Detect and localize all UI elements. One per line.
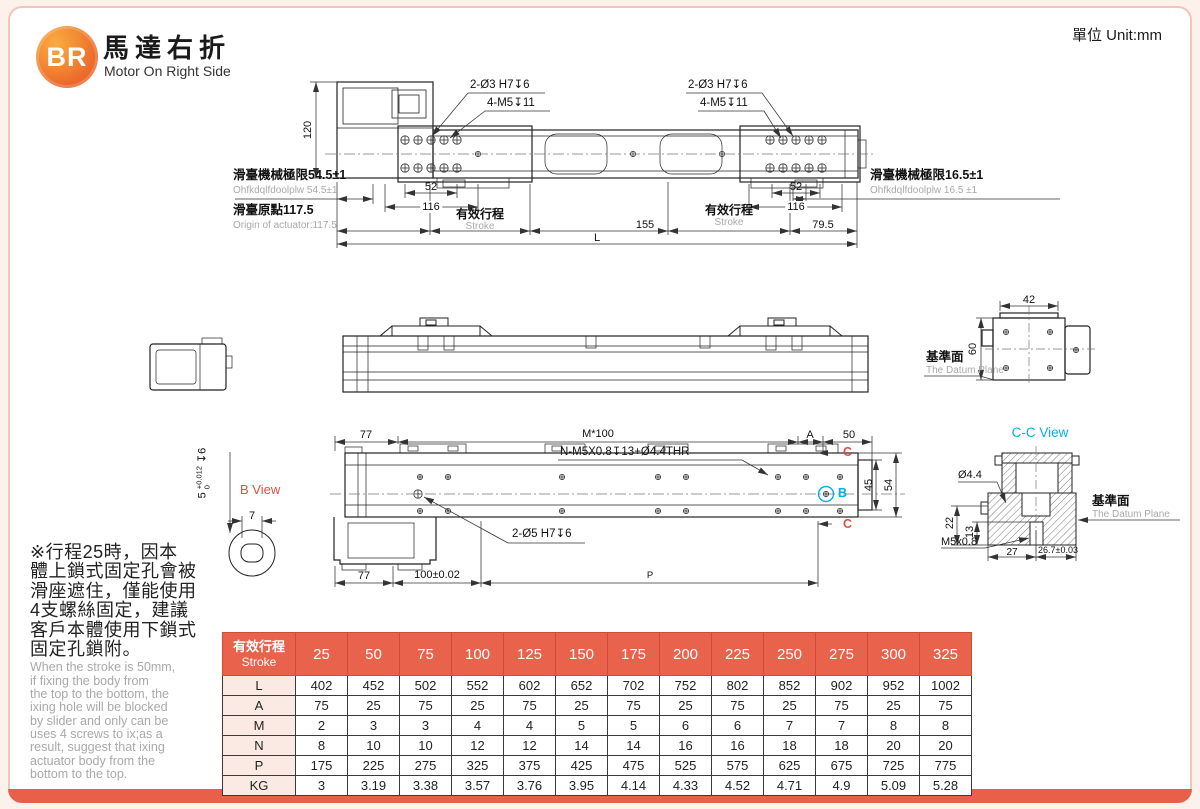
spec-cell: 475 xyxy=(608,756,660,776)
stroke-right-en: Stroke xyxy=(715,217,744,228)
spec-cell: 902 xyxy=(816,676,868,696)
stroke-left-en: Stroke xyxy=(466,221,495,232)
spec-cell: 3.57 xyxy=(452,776,504,796)
spec-cell: 4 xyxy=(452,716,504,736)
spec-cell: 752 xyxy=(660,676,712,696)
dim-m100: M*100 xyxy=(582,428,614,440)
datum-zh-end: 基準面 xyxy=(926,351,964,365)
datasheet-page: { "frame": {"unit": "單位 Unit:mm"}, "head… xyxy=(0,0,1200,809)
spec-cell: 6 xyxy=(660,716,712,736)
spec-cell: 75 xyxy=(712,696,764,716)
side-view-drawing xyxy=(150,318,868,392)
spec-cell: 725 xyxy=(868,756,920,776)
stroke-col-header: 75 xyxy=(400,633,452,676)
dim-155: 155 xyxy=(636,219,654,231)
dim-54: 54 xyxy=(883,479,895,491)
dim-116-left: 116 xyxy=(420,201,442,213)
section-c-bottom: C xyxy=(843,518,852,532)
stroke-header-corner: 有效行程 Stroke xyxy=(223,633,296,676)
spec-table: 有效行程 Stroke 2550751001251501752002252502… xyxy=(222,632,972,796)
spec-cell: 552 xyxy=(452,676,504,696)
spec-cell: 5 xyxy=(556,716,608,736)
spec-cell: 6 xyxy=(712,716,764,736)
b-view-tolerance: 5 +0.012 0 ↧6 xyxy=(196,448,211,499)
spec-cell: 525 xyxy=(660,756,712,776)
dim-116-right: 116 xyxy=(785,201,807,213)
spec-cell: 10 xyxy=(348,736,400,756)
dim-P: P xyxy=(647,571,653,581)
dim-52-right: 52 xyxy=(790,181,802,193)
dim-45: 45 xyxy=(863,479,875,491)
spec-cell: 14 xyxy=(608,736,660,756)
label-dowel: 2-Ø5 H7↧6 xyxy=(512,528,572,541)
spec-cell: 5.28 xyxy=(920,776,972,796)
dim-77-bottom: 77 xyxy=(358,570,370,582)
spec-cell: 452 xyxy=(348,676,400,696)
spec-cell: 502 xyxy=(400,676,452,696)
spec-cell: 75 xyxy=(400,696,452,716)
label-holes-right-1: 2-Ø3 H7↧6 xyxy=(688,79,748,92)
limit-right-en: Ohfkdqlfdoolplw 16.5 ±1 xyxy=(870,185,977,196)
spec-cell: 25 xyxy=(556,696,608,716)
spec-cell: 3.95 xyxy=(556,776,608,796)
row-label: M xyxy=(223,716,296,736)
spec-cell: 3.19 xyxy=(348,776,400,796)
label-thread: N-M5X0.8↧13+Ø4.4THR xyxy=(560,446,689,459)
origin-en: Origin of actuator:117.5 xyxy=(233,220,337,231)
spec-cell: 18 xyxy=(816,736,868,756)
dim-120: 120 xyxy=(302,121,314,139)
stroke-right-zh: 有效行程 xyxy=(705,204,753,217)
page-title: 馬達右折 xyxy=(103,28,231,65)
limit-left-zh: 滑臺機械極限54.5±1 xyxy=(233,169,346,183)
stroke-col-header: 150 xyxy=(556,633,608,676)
origin-zh: 滑臺原點117.5 xyxy=(233,204,314,218)
row-label: KG xyxy=(223,776,296,796)
note-block: ※行程25時，因本 體上鎖式固定孔會被 滑座遮住，僅能使用 4支螺絲固定，建議 … xyxy=(30,543,222,781)
dim-7: 7 xyxy=(249,510,255,522)
dim-50: 50 xyxy=(843,429,855,441)
limit-right-zh: 滑臺機械極限16.5±1 xyxy=(870,169,983,183)
spec-cell: 75 xyxy=(504,696,556,716)
stroke-header-en: Stroke xyxy=(223,655,295,669)
stroke-col-header: 100 xyxy=(452,633,504,676)
spec-cell: 702 xyxy=(608,676,660,696)
spec-cell: 652 xyxy=(556,676,608,696)
marker-b: B xyxy=(838,487,847,501)
dim-60: 60 xyxy=(967,343,979,355)
stroke-col-header: 175 xyxy=(608,633,660,676)
unit-label: 單位 Unit:mm xyxy=(1072,24,1162,45)
spec-cell: 12 xyxy=(504,736,556,756)
spec-table-wrap: 有效行程 Stroke 2550751001251501752002252502… xyxy=(222,632,972,796)
stroke-col-header: 200 xyxy=(660,633,712,676)
br-logo: BR xyxy=(36,26,98,88)
note-en: When the stroke is 50mm, if fixing the b… xyxy=(30,661,222,781)
b-view-title: B View xyxy=(240,483,280,497)
spec-cell: 375 xyxy=(504,756,556,776)
spec-cell: 20 xyxy=(868,736,920,756)
stroke-header-zh: 有效行程 xyxy=(223,639,295,655)
spec-cell: 3 xyxy=(296,776,348,796)
spec-cell: 275 xyxy=(400,756,452,776)
tol-stack: +0.012 0 xyxy=(196,466,211,489)
spec-cell: 852 xyxy=(764,676,816,696)
tol-depth: ↧6 xyxy=(197,448,209,463)
spec-cell: 5 xyxy=(608,716,660,736)
tol-lower: 0 xyxy=(203,466,211,489)
spec-cell: 8 xyxy=(868,716,920,736)
spec-cell: 802 xyxy=(712,676,764,696)
spec-cell: 675 xyxy=(816,756,868,776)
datum-en-cc: The Datum Plane xyxy=(1092,509,1170,520)
spec-cell: 4.14 xyxy=(608,776,660,796)
spec-cell: 7 xyxy=(816,716,868,736)
stroke-col-header: 250 xyxy=(764,633,816,676)
spec-cell: 25 xyxy=(348,696,400,716)
spec-cell: 3.76 xyxy=(504,776,556,796)
section-c-top: C xyxy=(843,446,852,460)
spec-cell: 18 xyxy=(764,736,816,756)
spec-cell: 4.9 xyxy=(816,776,868,796)
dim-27: 27 xyxy=(1006,547,1017,558)
row-label: A xyxy=(223,696,296,716)
spec-cell: 3 xyxy=(400,716,452,736)
spec-cell: 16 xyxy=(712,736,764,756)
datum-zh-cc: 基準面 xyxy=(1092,495,1130,509)
spec-cell: 12 xyxy=(452,736,504,756)
spec-cell: 3.38 xyxy=(400,776,452,796)
stroke-col-header: 300 xyxy=(868,633,920,676)
spec-cell: 2 xyxy=(296,716,348,736)
tol-base: 5 xyxy=(197,492,209,498)
datum-en-end: The Datum Plane xyxy=(926,365,1004,376)
dim-77-top: 77 xyxy=(360,429,372,441)
row-label: P xyxy=(223,756,296,776)
spec-cell: 402 xyxy=(296,676,348,696)
label-holes-left-1: 2-Ø3 H7↧6 xyxy=(470,79,530,92)
stroke-col-header: 225 xyxy=(712,633,764,676)
spec-cell: 16 xyxy=(660,736,712,756)
spec-cell: 14 xyxy=(556,736,608,756)
label-holes-right-2: 4-M5↧11 xyxy=(700,97,748,110)
spec-cell: 25 xyxy=(452,696,504,716)
spec-cell: 4 xyxy=(504,716,556,736)
spec-cell: 75 xyxy=(816,696,868,716)
stroke-col-header: 25 xyxy=(296,633,348,676)
dim-267: 26.7±0.03 xyxy=(1038,546,1078,556)
spec-cell: 3 xyxy=(348,716,400,736)
spec-cell: 4.33 xyxy=(660,776,712,796)
stroke-col-header: 125 xyxy=(504,633,556,676)
spec-cell: 4.71 xyxy=(764,776,816,796)
row-label: L xyxy=(223,676,296,696)
spec-cell: 8 xyxy=(296,736,348,756)
spec-cell: 20 xyxy=(920,736,972,756)
dim-100: 100±0.02 xyxy=(414,569,460,581)
dim-m5: M5x0.8 xyxy=(941,536,977,548)
cc-view-title: C-C View xyxy=(1012,426,1069,441)
spec-cell: 175 xyxy=(296,756,348,776)
dim-42: 42 xyxy=(1023,294,1035,306)
table-row: M2334455667788 xyxy=(223,716,972,736)
spec-cell: 75 xyxy=(608,696,660,716)
spec-cell: 4.52 xyxy=(712,776,764,796)
stroke-col-header: 275 xyxy=(816,633,868,676)
page-subtitle: Motor On Right Side xyxy=(104,63,231,79)
stroke-left-zh: 有效行程 xyxy=(456,208,504,221)
stroke-col-header: 50 xyxy=(348,633,400,676)
spec-cell: 10 xyxy=(400,736,452,756)
dim-52-left: 52 xyxy=(425,181,437,193)
spec-cell: 5.09 xyxy=(868,776,920,796)
dim-A: A xyxy=(806,429,813,441)
spec-cell: 7 xyxy=(764,716,816,736)
spec-cell: 25 xyxy=(764,696,816,716)
spec-cell: 8 xyxy=(920,716,972,736)
dim-d44: Ø4.4 xyxy=(958,469,982,481)
plan-view-drawing xyxy=(330,436,905,587)
table-row: N8101012121414161618182020 xyxy=(223,736,972,756)
dim-22: 22 xyxy=(944,517,956,529)
table-row: A75257525752575257525752575 xyxy=(223,696,972,716)
spec-cell: 775 xyxy=(920,756,972,776)
spec-cell: 25 xyxy=(868,696,920,716)
label-holes-left-2: 4-M5↧11 xyxy=(487,97,535,110)
spec-cell: 625 xyxy=(764,756,816,776)
table-row: P175225275325375425475525575625675725775 xyxy=(223,756,972,776)
table-row: L402452502552602652702752802852902952100… xyxy=(223,676,972,696)
stroke-col-header: 325 xyxy=(920,633,972,676)
spec-cell: 25 xyxy=(660,696,712,716)
dim-79-5: 79.5 xyxy=(812,219,833,231)
row-label: N xyxy=(223,736,296,756)
spec-cell: 602 xyxy=(504,676,556,696)
limit-left-en: Ohfkdqlfdoolplw 54.5±1 xyxy=(233,185,337,196)
spec-cell: 75 xyxy=(920,696,972,716)
table-row: KG33.193.383.573.763.954.144.334.524.714… xyxy=(223,776,972,796)
br-logo-text: BR xyxy=(47,42,88,73)
dim-L: L xyxy=(594,232,600,244)
stroke-header-row: 有效行程 Stroke 2550751001251501752002252502… xyxy=(223,633,972,676)
spec-cell: 575 xyxy=(712,756,764,776)
spec-cell: 1002 xyxy=(920,676,972,696)
spec-cell: 325 xyxy=(452,756,504,776)
spec-cell: 425 xyxy=(556,756,608,776)
spec-cell: 75 xyxy=(296,696,348,716)
note-zh: ※行程25時，因本 體上鎖式固定孔會被 滑座遮住，僅能使用 4支螺絲固定，建議 … xyxy=(30,543,222,659)
spec-cell: 225 xyxy=(348,756,400,776)
spec-cell: 952 xyxy=(868,676,920,696)
